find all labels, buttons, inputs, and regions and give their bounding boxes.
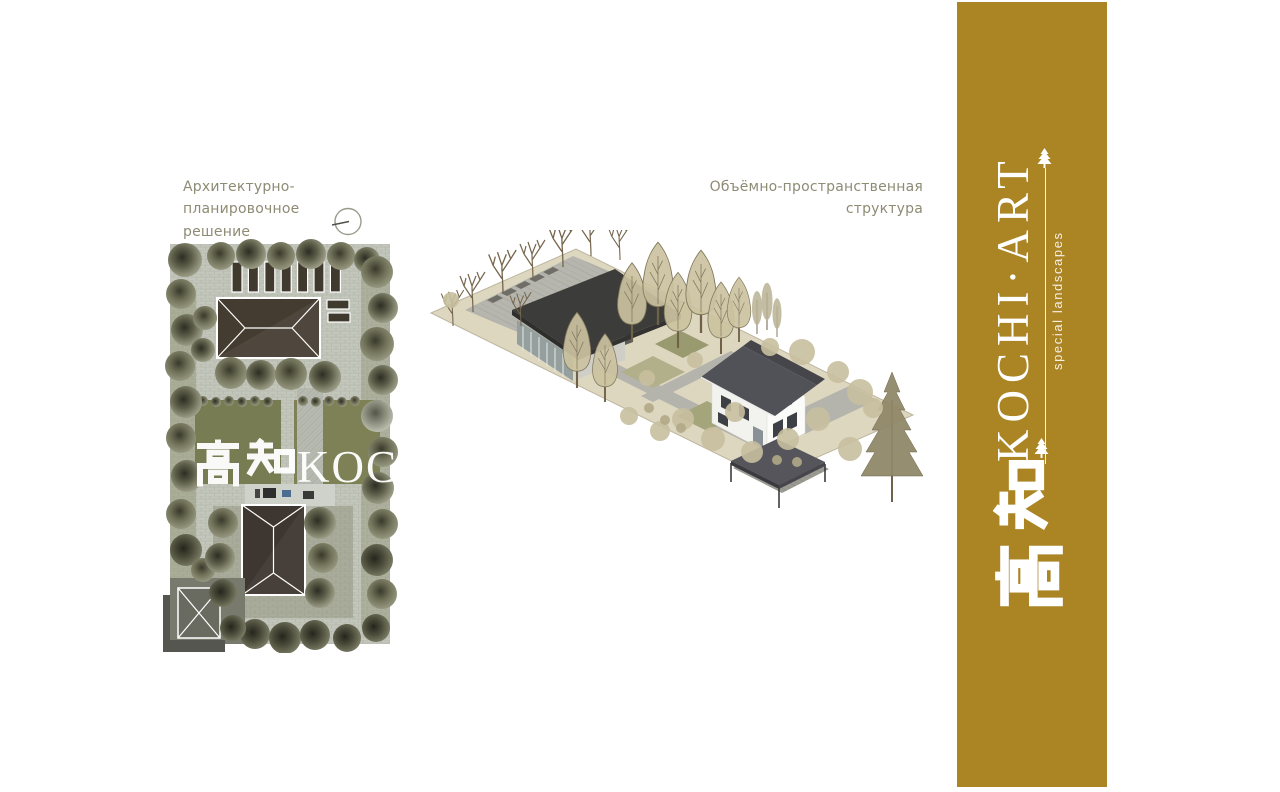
guest-house-roof — [242, 505, 305, 595]
axon-title-line1: Объёмно-пространственная — [663, 176, 923, 198]
presentation-slide: Архитектурно-планировочное решение Объём… — [0, 0, 1280, 792]
north-indicator-icon — [330, 204, 366, 240]
kanji-taka-icon — [993, 540, 1065, 612]
brand-tagline: special landscapes — [1049, 248, 1065, 370]
axonometric-image — [425, 230, 940, 525]
brand-kanji — [991, 456, 1067, 612]
kanji-chi-icon — [993, 460, 1065, 532]
kanji-taka-icon — [193, 438, 243, 488]
logo-divider-line — [1045, 168, 1046, 464]
brand-logo: KOCHI·ART — [987, 164, 1039, 462]
columnar-trees — [752, 283, 782, 337]
pine-tree-icon — [1034, 438, 1049, 458]
axon-title-line2: структура — [663, 198, 923, 220]
axon-section-title: Объёмно-пространственная структура — [663, 176, 923, 221]
plan-title-line1: Архитектурно-планировочное — [183, 176, 403, 221]
plan-section-title: Архитектурно-планировочное решение — [183, 176, 403, 243]
pine-tree-icon — [1037, 148, 1052, 168]
site-plan-image: KOCHI — [163, 238, 399, 653]
kanji-chi-icon — [245, 438, 295, 488]
main-house-roof — [217, 298, 320, 358]
plan-watermark: KOCHI — [193, 434, 399, 488]
watermark-latin: KOCHI — [297, 447, 399, 488]
brand-banner: KOCHI·ART special landscapes — [957, 2, 1107, 787]
